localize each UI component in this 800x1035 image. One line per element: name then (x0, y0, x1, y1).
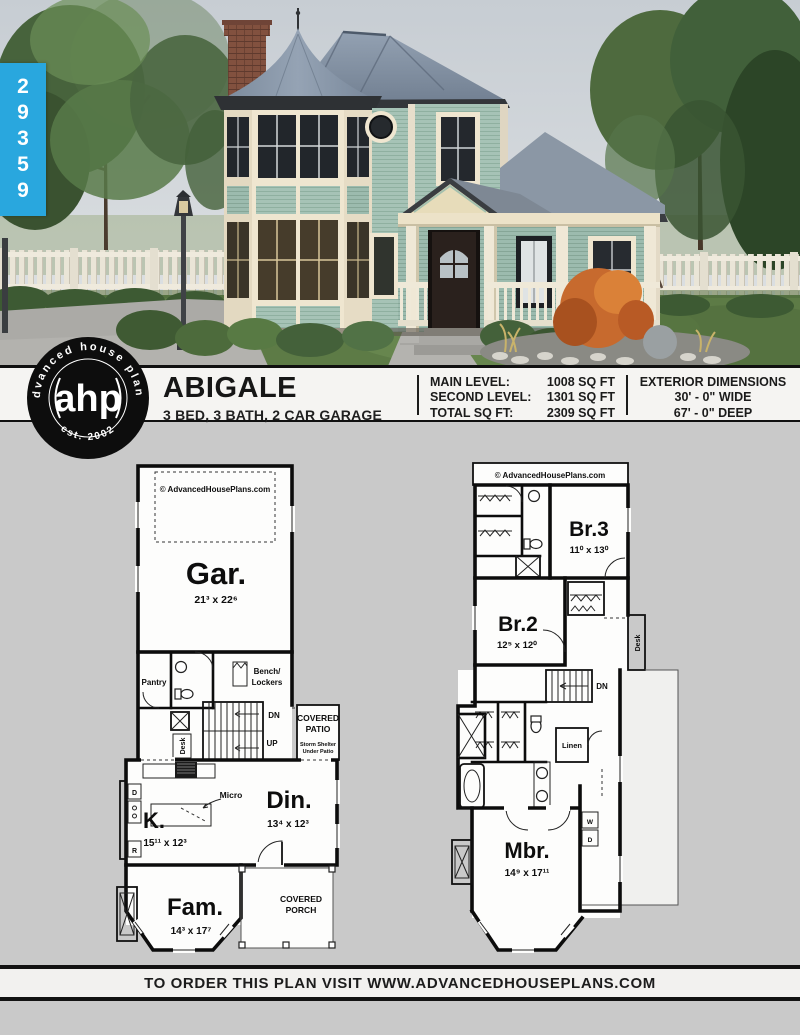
dryer-label: D (588, 837, 593, 844)
exterior-dimensions: EXTERIOR DIMENSIONS 30' - 0" WIDE 67' - … (632, 375, 794, 421)
br3-label: Br.3 (569, 518, 609, 541)
patio-note-1: Storm Shelter (300, 742, 337, 748)
desk-label: Desk (180, 738, 187, 755)
exterior-width: 30' - 0" WIDE (632, 390, 794, 405)
br2-label: Br.2 (498, 613, 538, 636)
range-label: R (132, 848, 137, 855)
order-url-text[interactable]: TO ORDER THIS PLAN VISIT WWW.ADVANCEDHOU… (144, 975, 656, 992)
br3-dims: 11⁰ x 13⁰ (570, 545, 609, 556)
spec-label: TOTAL SQ FT: (430, 406, 513, 421)
second-level-plan: © AdvancedHousePlans.com Br.3 11⁰ x 13⁰ (450, 456, 686, 958)
dining-label: Din. (266, 787, 311, 814)
spec-value: 1008 SQ FT (547, 375, 615, 390)
house-photo (0, 0, 800, 366)
sink-icon (176, 662, 187, 673)
divider (417, 375, 419, 415)
washer-label: W (587, 819, 594, 826)
lamp-post-left (2, 238, 8, 333)
spec-value: 1301 SQ FT (547, 390, 615, 405)
garage-label: Gar. (186, 556, 246, 591)
bench-label-1: Bench/ (254, 667, 281, 676)
spec-row: TOTAL SQ FT: 2309 SQ FT (430, 406, 615, 421)
kitchen-label: K. (143, 808, 165, 833)
dishwasher-label: D (132, 790, 137, 797)
toilet-icon (530, 540, 542, 549)
ahp-logo: advanced house plans est. 2002 ahp (24, 334, 152, 462)
micro-label: Micro (220, 790, 243, 800)
bench-label-2: Lockers (252, 678, 283, 687)
dining-dims: 13⁴ x 12³ (267, 819, 309, 830)
fireplace (452, 840, 472, 884)
plan-subtitle: 3 BED, 3 BATH, 2 CAR GARAGE (163, 407, 382, 423)
patio-note-2: Under Patio (303, 749, 335, 755)
stairs-dn-label: DN (268, 711, 280, 720)
logo-center: ahp (54, 378, 122, 420)
spec-value: 2309 SQ FT (547, 406, 615, 421)
main-level-plan: © AdvancedHousePlans.com Gar. 21³ x 22⁶ … (115, 456, 351, 958)
spec-list: MAIN LEVEL: 1008 SQ FT SECOND LEVEL: 130… (430, 375, 615, 421)
divider (626, 375, 628, 415)
plan-title: ABIGALE (163, 374, 382, 403)
kitchen-dims: 15¹¹ x 12³ (143, 838, 187, 849)
exterior-heading: EXTERIOR DIMENSIONS (632, 375, 794, 390)
boulder (643, 325, 677, 359)
spec-row: MAIN LEVEL: 1008 SQ FT (430, 375, 615, 390)
patio-label-1: COVERED (297, 713, 339, 723)
mbr-dims: 14⁹ x 17¹¹ (505, 868, 550, 879)
spec-label: SECOND LEVEL: (430, 390, 531, 405)
family-dims: 14³ x 17⁷ (171, 926, 212, 937)
patio-label-2: PATIO (306, 724, 331, 734)
br2-dims: 12⁵ x 12⁰ (497, 640, 537, 651)
footer-bar: TO ORDER THIS PLAN VISIT WWW.ADVANCEDHOU… (0, 965, 800, 1001)
desk-label: Desk (635, 635, 642, 652)
stairs-dn-label: DN (596, 682, 608, 691)
porch-label-1: COVERED (280, 894, 322, 904)
pantry-label: Pantry (142, 678, 167, 687)
garage-dims: 21³ x 22⁶ (194, 594, 238, 606)
spec-row: SECOND LEVEL: 1301 SQ FT (430, 390, 615, 405)
roof-below-outline-fill (620, 670, 678, 905)
toilet-icon (181, 690, 193, 699)
plan-watermark: © AdvancedHousePlans.com (495, 471, 606, 480)
flyer-page: 29359 ABIGALE 3 BED, 3 BATH, 2 CAR GARAG… (0, 0, 800, 1035)
stairs-up-label: UP (266, 739, 278, 748)
family-label: Fam. (167, 894, 223, 921)
porch-label-2: PORCH (286, 905, 317, 915)
plan-number-tab: 29359 (0, 63, 46, 216)
spec-label: MAIN LEVEL: (430, 375, 510, 390)
title-block: ABIGALE 3 BED, 3 BATH, 2 CAR GARAGE (163, 374, 382, 423)
plan-watermark: © AdvancedHousePlans.com (160, 485, 271, 494)
exterior-depth: 67' - 0" DEEP (632, 406, 794, 421)
plan-number: 29359 (13, 75, 34, 205)
sink-icon (529, 491, 540, 502)
mbr-label: Mbr. (504, 838, 549, 863)
linen-label: Linen (562, 741, 582, 750)
front-door (428, 230, 480, 330)
